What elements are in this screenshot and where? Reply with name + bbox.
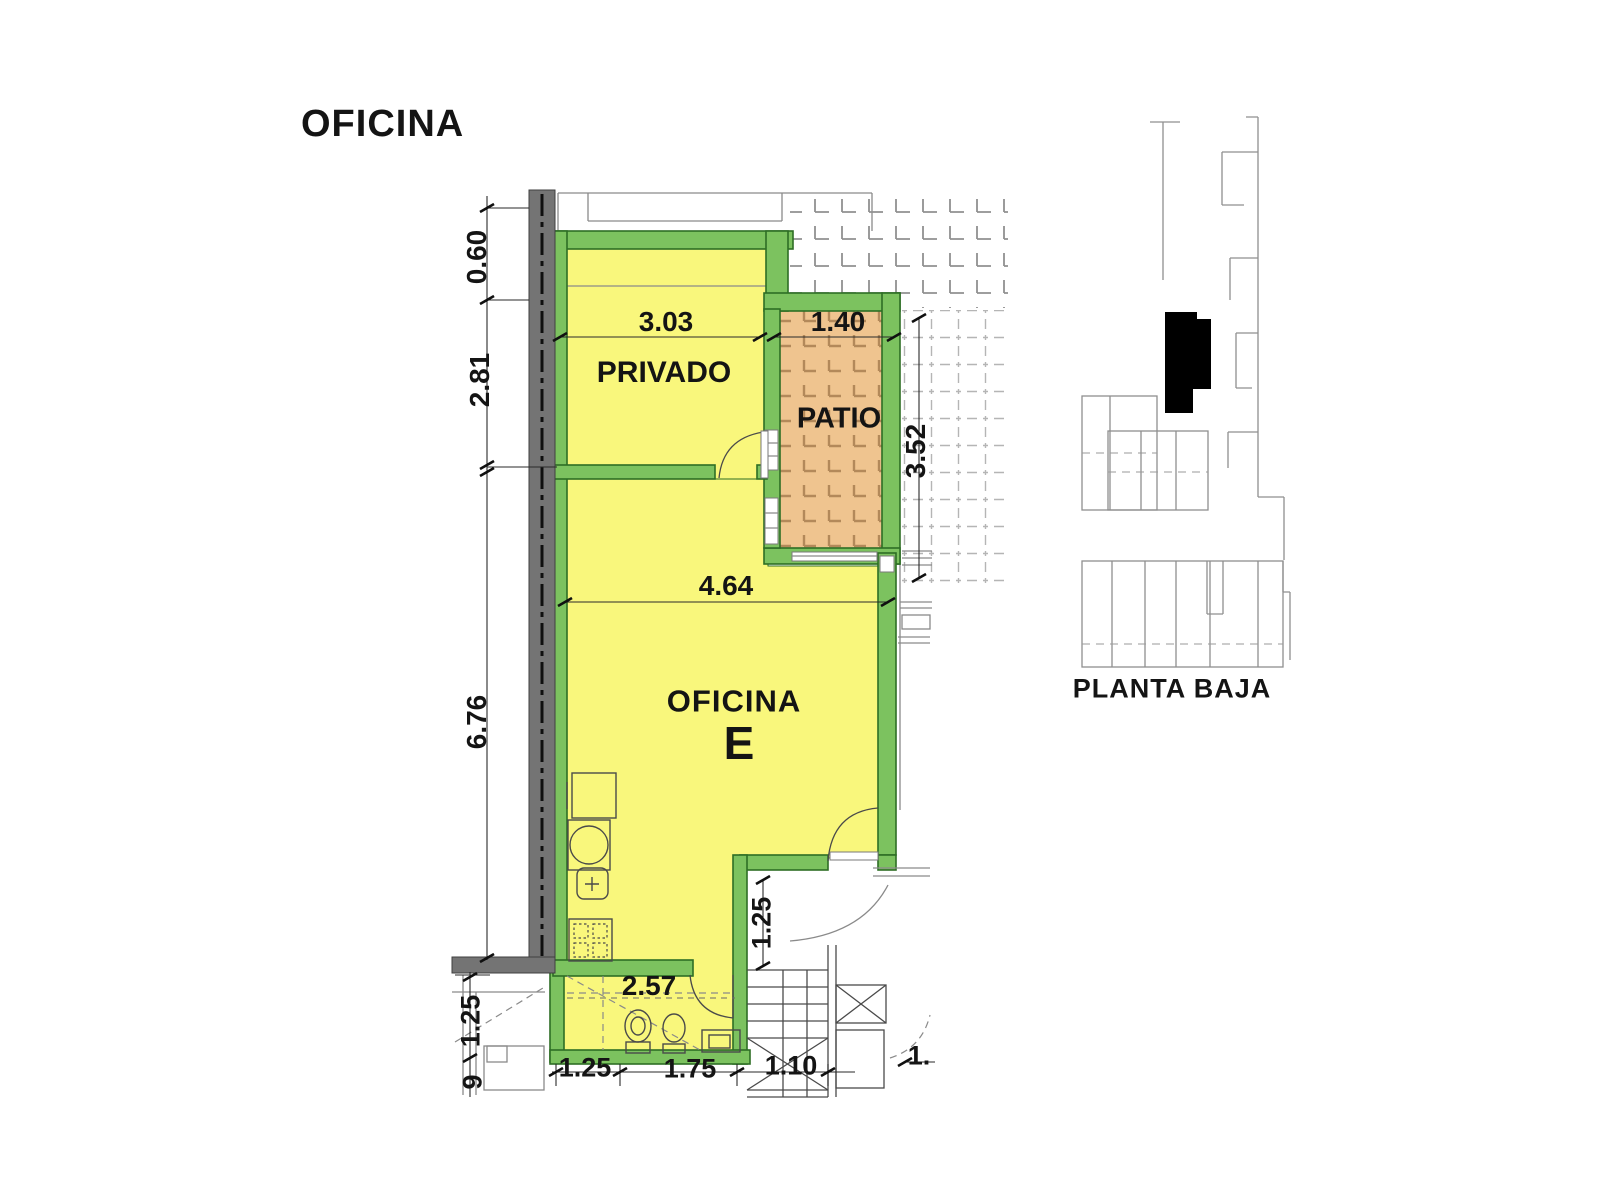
dim-bottom-b: 1.75 <box>664 1056 717 1083</box>
room-label-patio: PATIO <box>797 405 881 434</box>
key-plan <box>1082 117 1290 667</box>
neighbor-tile-area <box>790 190 1008 308</box>
window-office-right <box>880 556 894 572</box>
dim-bath-width: 2.57 <box>622 972 677 1000</box>
dim-bottom-left-a: 1.25 <box>458 995 485 1048</box>
unit-location-marker <box>1165 312 1211 413</box>
dim-bottom-left-b: 9 <box>460 1074 487 1089</box>
dim-left-top: 0.60 <box>463 230 491 285</box>
dim-left-mid: 2.81 <box>466 353 494 408</box>
hall-door-swing <box>790 885 888 941</box>
dim-bottom-a: 1.25 <box>559 1055 612 1082</box>
room-label-office: OFICINA <box>667 686 801 717</box>
dim-office-width: 4.64 <box>699 572 754 600</box>
party-wall <box>452 190 555 973</box>
privado-door-leaf <box>761 431 768 478</box>
dim-left-main: 6.76 <box>463 695 491 750</box>
page-title: OFICINA <box>301 103 464 146</box>
window-patio-lower <box>765 498 778 544</box>
room-label-office-unit: E <box>724 720 755 766</box>
dim-privado-width: 3.03 <box>639 308 694 336</box>
dim-hall-depth: 1.25 <box>749 897 776 950</box>
elevator-shaft <box>828 945 886 1097</box>
dim-bottom-d: 1. <box>908 1043 931 1070</box>
floor-plan-page: OFICINA PRIVADO PATIO OFICINA E 3.03 1.4… <box>0 0 1600 1200</box>
dim-patio-width: 1.40 <box>811 308 866 336</box>
key-plan-caption: PLANTA BAJA <box>1073 676 1272 703</box>
room-label-privado: PRIVADO <box>597 358 731 388</box>
floor-plan-drawing <box>0 0 1600 1200</box>
dim-bottom-c: 1.10 <box>765 1053 818 1080</box>
office-entry-door-leaf <box>830 852 878 860</box>
dim-patio-height: 3.52 <box>902 424 930 479</box>
